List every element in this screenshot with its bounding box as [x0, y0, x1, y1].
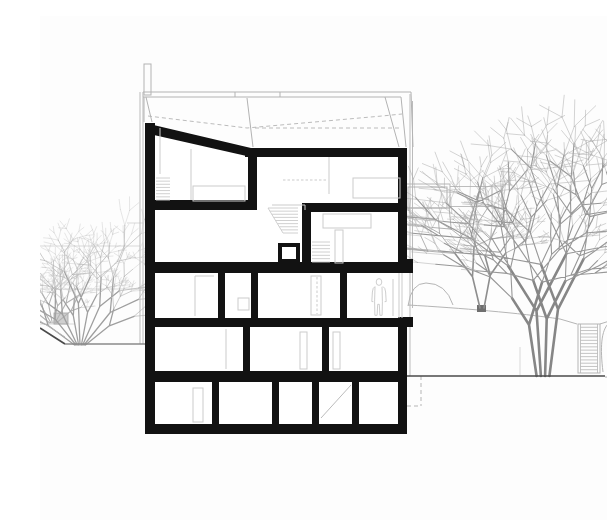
section-wall-slab	[398, 148, 407, 263]
section-wall-slab	[145, 123, 155, 434]
section-wall-slab	[399, 259, 413, 273]
section-wall-slab	[272, 382, 279, 425]
section-wall-slab	[145, 371, 407, 382]
section-wall-slab	[302, 203, 311, 263]
section-wall-slab	[145, 424, 407, 434]
section-wall-slab	[145, 318, 407, 327]
section-wall-slab	[340, 273, 347, 318]
stair-parapet-void	[282, 247, 296, 259]
section-wall-slab	[212, 382, 219, 425]
section-wall-slab	[145, 262, 407, 273]
section-wall-slab	[322, 327, 329, 371]
section-wall-slab	[248, 150, 257, 207]
section-drawing-svg	[40, 16, 607, 520]
section-wall-slab	[312, 382, 319, 425]
section-wall-slab	[245, 148, 407, 157]
section-wall-slab	[352, 382, 359, 425]
section-wall-slab	[243, 327, 250, 371]
section-wall-slab	[218, 273, 225, 318]
architectural-section-drawing	[40, 16, 607, 520]
section-wall-slab	[251, 273, 258, 318]
section-wall-slab	[302, 203, 407, 212]
